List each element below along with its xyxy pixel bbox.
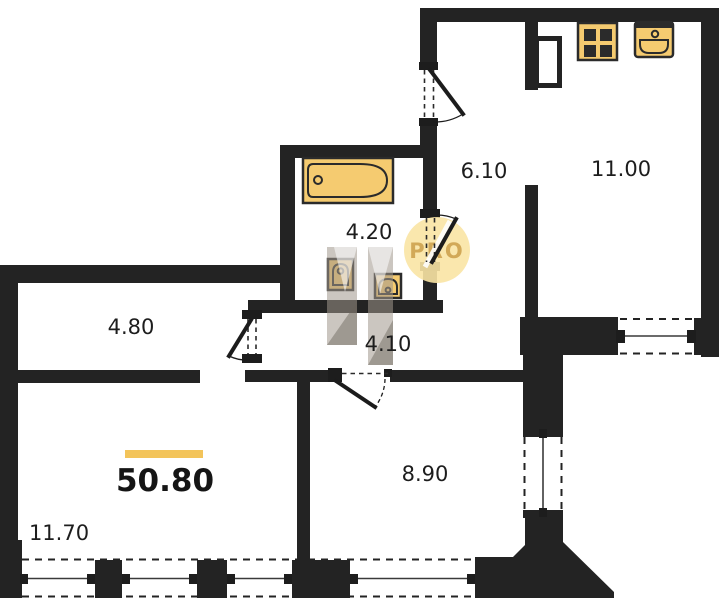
bedroom-door bbox=[336, 374, 388, 408]
walls bbox=[0, 8, 719, 598]
wall-segment bbox=[420, 126, 437, 158]
wall-segment bbox=[245, 370, 342, 382]
wall-segment bbox=[297, 382, 310, 560]
window-frame bbox=[350, 574, 358, 584]
window-frame bbox=[87, 574, 95, 584]
window-pier bbox=[95, 560, 122, 598]
window-pier bbox=[292, 560, 350, 598]
room-label-living-room: 11.70 bbox=[29, 521, 89, 545]
window-frame bbox=[20, 574, 28, 584]
wall-segment bbox=[701, 8, 719, 357]
window-pier bbox=[197, 560, 227, 598]
wall-segment bbox=[0, 265, 295, 283]
room-label-bedroom: 8.90 bbox=[402, 462, 449, 486]
door-swing-arc bbox=[375, 379, 385, 407]
door-frame bbox=[420, 209, 440, 218]
chamfer-corner-wall bbox=[475, 518, 614, 598]
wall-segment bbox=[0, 540, 22, 598]
window-frame bbox=[227, 574, 235, 584]
wall-segment bbox=[520, 317, 618, 355]
window-frame bbox=[122, 574, 130, 584]
door-frame bbox=[242, 310, 262, 319]
entrance-door bbox=[425, 70, 464, 122]
window-frame bbox=[539, 429, 547, 438]
door-leaf bbox=[336, 381, 375, 407]
wall-segment bbox=[423, 8, 719, 22]
window-frame bbox=[687, 330, 696, 343]
window-lines bbox=[22, 319, 696, 597]
wall-segment bbox=[523, 355, 563, 430]
door-leaf bbox=[430, 70, 463, 114]
wall-segment bbox=[280, 145, 295, 303]
wall-segment bbox=[390, 370, 523, 382]
wall-segment bbox=[525, 185, 538, 317]
total-area-label: 50.80 bbox=[116, 463, 214, 499]
total-area-accent-bar bbox=[125, 450, 203, 458]
wall-segment bbox=[420, 8, 437, 62]
wall-segment bbox=[280, 145, 437, 158]
bathtub-icon bbox=[303, 158, 393, 203]
kitchen-sink-icon bbox=[635, 22, 673, 57]
floor-plan: PRO 4. bbox=[0, 0, 719, 600]
room-label-kitchen: 11.00 bbox=[591, 157, 651, 181]
room-label-entrance-hall: 6.10 bbox=[461, 159, 508, 183]
room-label-hallway-left: 4.80 bbox=[108, 315, 155, 339]
floor-plan-canvas: PRO 4. bbox=[0, 0, 719, 600]
window-frame bbox=[616, 330, 625, 343]
window-frame bbox=[284, 574, 292, 584]
stove-icon bbox=[578, 23, 617, 60]
door-frame bbox=[242, 354, 262, 363]
duct-shaft-inner bbox=[539, 41, 557, 83]
room-label-corridor: 4.10 bbox=[365, 332, 412, 356]
window-frame bbox=[539, 508, 547, 517]
window-frame bbox=[189, 574, 197, 584]
wall-segment bbox=[18, 370, 200, 383]
room-label-bathroom: 4.20 bbox=[346, 220, 393, 244]
hallway-door bbox=[229, 319, 256, 360]
wall-segment bbox=[423, 158, 437, 209]
window-frame bbox=[467, 574, 475, 584]
